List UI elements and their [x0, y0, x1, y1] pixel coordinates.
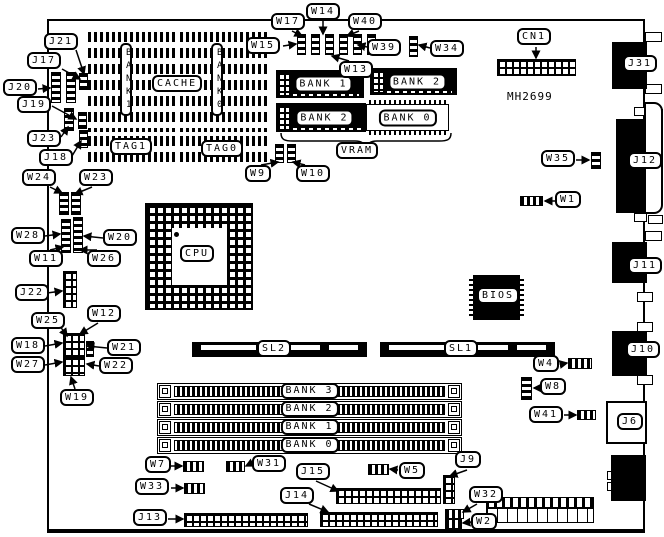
label-w24: W24: [22, 169, 56, 186]
tag0-label: TAG0: [201, 140, 243, 157]
label-j12: J12: [628, 152, 662, 169]
label-w21: W21: [107, 339, 141, 356]
sl1-label: SL1: [444, 340, 478, 357]
edge-tab-icon: [648, 215, 663, 224]
label-j20: J20: [3, 79, 37, 96]
simm-bank3: BANK 3: [157, 383, 462, 400]
cpu-pin1-marker: [174, 232, 179, 237]
label-w32: W32: [469, 486, 503, 503]
label-w12: W12: [87, 305, 121, 322]
jumper-w5: [368, 464, 389, 475]
simm-latch-icon: [159, 421, 171, 434]
w27-jumper-block: [63, 357, 85, 376]
jumper-w20: [73, 217, 83, 253]
label-w18: W18: [11, 337, 45, 354]
edge-tab-icon: [634, 213, 647, 222]
label-j17: J17: [27, 52, 61, 69]
jumper-j21: [79, 73, 88, 90]
keyboard-connector: [611, 455, 646, 501]
vram-bank2b-label: BANK 2: [295, 109, 353, 126]
label-w28: W28: [11, 227, 45, 244]
label-w11: W11: [29, 250, 63, 267]
jumper-w34: [409, 36, 418, 57]
label-w31: W31: [252, 455, 286, 472]
jumper-w7: [183, 461, 204, 472]
label-w5: W5: [399, 462, 425, 479]
simm-bank3-label: BANK 3: [280, 383, 338, 399]
label-w35: W35: [541, 150, 575, 167]
jumper-w32: [445, 509, 464, 519]
simm-bank0: BANK 0: [157, 437, 462, 454]
edge-tab-icon: [645, 32, 662, 42]
simm-latch-icon: [448, 385, 460, 398]
vram-title-label: VRAM: [336, 142, 378, 159]
label-w33: W33: [135, 478, 169, 495]
j14-header: [320, 512, 438, 527]
jumper-j23: [64, 108, 74, 131]
simm-bank2: BANK 2: [157, 401, 462, 418]
jumper-w31: [226, 461, 245, 472]
label-j31: J31: [623, 55, 657, 72]
jumper-w41: [577, 410, 596, 420]
simm-latch-icon: [159, 385, 171, 398]
jumper-w13: [339, 34, 348, 55]
power-strip-terminals: [486, 508, 594, 523]
label-w40: W40: [348, 13, 382, 30]
label-cn1: CN1: [517, 28, 551, 45]
label-w25: W25: [31, 312, 65, 329]
simm-latch-icon: [159, 439, 171, 452]
vram-bank1-label: BANK 1: [294, 76, 352, 93]
jumper-w2: [445, 519, 462, 529]
jumper-j20-b: [66, 72, 76, 103]
label-j23: J23: [27, 130, 61, 147]
jumper-w10: [287, 144, 296, 163]
label-w27: W27: [11, 356, 45, 373]
simm-latch-icon: [159, 403, 171, 416]
simm-bank1: BANK 1: [157, 419, 462, 436]
label-w26: W26: [87, 250, 121, 267]
edge-tab-icon: [637, 292, 653, 302]
label-w4: W4: [533, 355, 559, 372]
simm-latch-icon: [448, 421, 460, 434]
jumper-j20-a: [51, 72, 61, 103]
j9-header: [443, 475, 455, 504]
jumper-w1: [520, 196, 543, 206]
jumper-w33: [184, 483, 205, 494]
label-j9: J9: [455, 451, 481, 468]
label-w15: W15: [246, 37, 280, 54]
label-w39: W39: [367, 39, 401, 56]
simm-bank2-label: BANK 2: [280, 401, 338, 417]
cache-bank0-vertical-label: BANK 0: [211, 43, 223, 116]
label-w41: W41: [529, 406, 563, 423]
label-w1: W1: [555, 191, 581, 208]
jumper-w15: [297, 34, 306, 55]
jumper-w28: [61, 219, 71, 253]
label-w13: W13: [339, 61, 373, 78]
w18-jumper-block: [63, 333, 85, 357]
label-j21: J21: [44, 33, 78, 50]
jumper-w14: [325, 34, 334, 55]
label-w22: W22: [99, 357, 133, 374]
jumper-w4: [568, 358, 592, 369]
label-w23: W23: [79, 169, 113, 186]
label-j10: J10: [626, 341, 660, 358]
label-w14: W14: [306, 3, 340, 20]
label-j18: J18: [39, 149, 73, 166]
j15-header: [336, 488, 441, 504]
label-w17: W17: [271, 13, 305, 30]
label-j22: J22: [15, 284, 49, 301]
cn1-header: [497, 59, 576, 76]
motherboard-diagram: BANK 1 BANK 2 BANK 2 BANK 0 BANK 3 BANK …: [0, 0, 664, 537]
label-j15: J15: [296, 463, 330, 480]
cache-bank1-vertical-label: BANK 1: [120, 43, 132, 116]
tag1-label: TAG1: [110, 138, 152, 155]
sl2-label: SL2: [257, 340, 291, 357]
jumper-w40: [353, 34, 362, 55]
vram-bank0-label: BANK 0: [378, 109, 436, 126]
label-w8: W8: [540, 378, 566, 395]
simm-latch-icon: [448, 439, 460, 452]
vram-module-bank0: BANK 0: [366, 104, 449, 131]
label-j19: J19: [17, 96, 51, 113]
jumper-w8: [521, 377, 532, 400]
jumper-w17: [311, 34, 320, 55]
label-w20: W20: [103, 229, 137, 246]
jumper-j19: [78, 112, 87, 129]
edge-tab-icon: [637, 375, 653, 385]
label-j6: J6: [617, 413, 643, 430]
edge-tab-icon: [645, 231, 662, 241]
jumper-w21: [86, 341, 94, 357]
label-w34: W34: [430, 40, 464, 57]
jumper-w23: [71, 192, 81, 215]
cpu-label: CPU: [180, 245, 214, 262]
cache-title-label: CACHE: [152, 75, 202, 92]
part-number: MH2699: [507, 90, 553, 103]
label-w9: W9: [245, 165, 271, 182]
jumper-j18: [79, 130, 88, 148]
jumper-w9: [275, 144, 284, 163]
label-w19: W19: [60, 389, 94, 406]
edge-tab-icon: [645, 84, 662, 94]
simm-bank1-label: BANK 1: [280, 419, 338, 435]
simm-bank0-label: BANK 0: [280, 437, 338, 453]
j22-header: [63, 271, 77, 308]
bios-label: BIOS: [477, 287, 519, 304]
jumper-w24: [59, 192, 69, 215]
vram-module-bank2b: BANK 2: [276, 103, 366, 132]
label-j14: J14: [280, 487, 314, 504]
vram-module-bank2a: BANK 2: [370, 68, 457, 95]
label-w2: W2: [471, 513, 497, 530]
label-w10: W10: [296, 165, 330, 182]
jumper-w35: [591, 152, 601, 169]
j13-header: [184, 513, 308, 527]
simm-latch-icon: [448, 403, 460, 416]
label-j13: J13: [133, 509, 167, 526]
label-w7: W7: [145, 456, 171, 473]
label-j11: J11: [628, 257, 662, 274]
vram-bank2a-label: BANK 2: [388, 73, 446, 90]
